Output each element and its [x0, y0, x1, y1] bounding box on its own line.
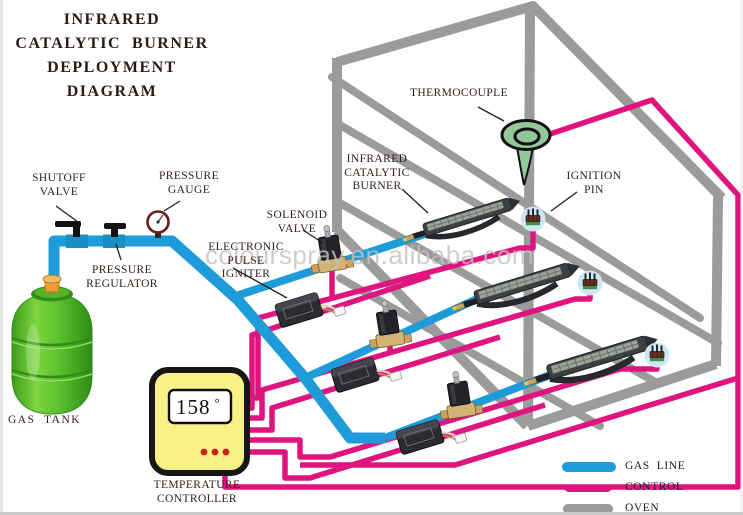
ignition-pin-icon-2 — [578, 271, 603, 296]
leader-pressure-gauge — [164, 201, 180, 211]
label-pressure-regulator: PRESSURE REGULATOR — [86, 264, 158, 291]
temperature-controller — [152, 370, 247, 473]
thermocouple-icon — [502, 121, 550, 186]
legend-control-swatch — [565, 485, 611, 492]
diagram-title: INFRARED CATALYTIC BURNER DEPLOYMENT DIA… — [15, 8, 208, 104]
controller-reading-value: 158 — [176, 395, 211, 419]
tank-valve-top — [43, 275, 61, 283]
ignition-pin-icon-1 — [521, 207, 546, 232]
label-infrared-burner: INFRARED CATALYTIC BURNER — [344, 153, 409, 194]
label-pulse-igniter: ELECTRONIC PULSE IGNITER — [208, 241, 284, 282]
label-gas-tank: GAS TANK — [8, 414, 81, 428]
label-pressure-gauge: PRESSURE GAUGE — [159, 170, 219, 197]
leader-thermocouple — [478, 107, 504, 121]
gas-tank — [12, 275, 92, 414]
pressure-gauge-icon — [148, 212, 169, 239]
tank-body — [12, 294, 92, 414]
label-solenoid-valve: SOLENOID VALVE — [267, 209, 328, 236]
control-stub-dot — [269, 409, 275, 415]
pulse-igniter-icon-1 — [274, 286, 346, 333]
controller-dot-1 — [201, 449, 208, 456]
controller-dot-3 — [223, 449, 230, 456]
label-ignition-pin: IGNITION PIN — [567, 170, 622, 197]
legend-label-control: CONTROL — [625, 481, 684, 493]
tank-highlight — [26, 324, 40, 380]
controller-reading-unit: ° — [215, 395, 221, 410]
label-temperature-controller: TEMPERATURE CONTROLLER — [154, 479, 241, 506]
label-shutoff-valve: SHUTOFF VALVE — [32, 172, 86, 199]
leader-shutoff-valve — [56, 206, 78, 222]
legend-gas-line-swatch — [562, 462, 616, 472]
deployment-diagram: INFRARED CATALYTIC BURNER DEPLOYMENT DIA… — [0, 0, 743, 515]
ignition-pin-icon-3 — [645, 343, 670, 368]
legend-swatches — [562, 462, 616, 514]
controller-reading: 158° — [176, 395, 221, 420]
label-thermocouple: THERMOCOUPLE — [410, 87, 508, 101]
legend-label-oven: OVEN — [625, 502, 659, 514]
legend-label-gas-line: GAS LINE — [625, 460, 685, 472]
controller-dot-2 — [212, 449, 219, 456]
